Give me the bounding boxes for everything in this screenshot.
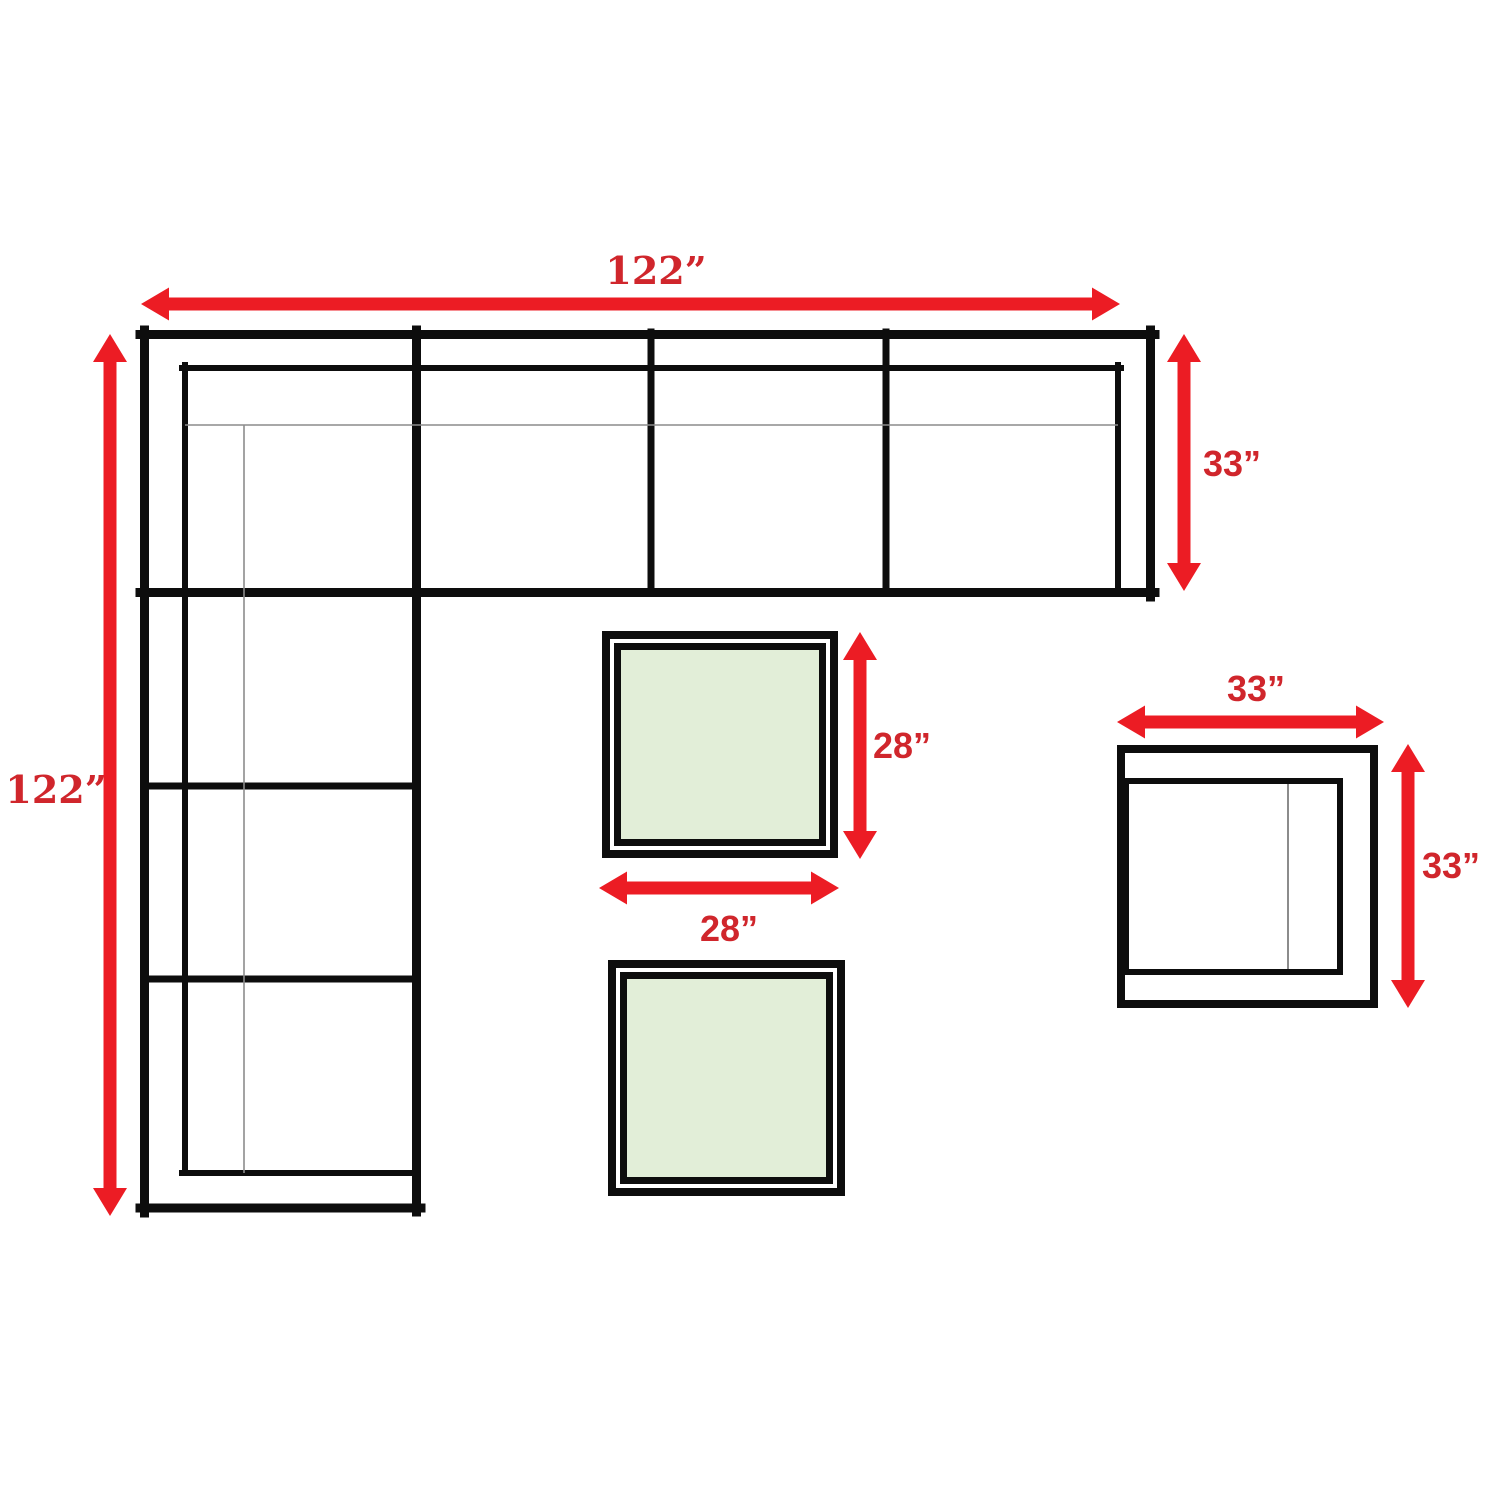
side-chair-outline (1121, 749, 1374, 1004)
side-chair-width-label: 33” (1227, 668, 1285, 709)
arrow-bar (1143, 716, 1358, 729)
sectional-width-label: 122” (605, 248, 706, 293)
sectional-depth-arrow (1167, 334, 1201, 591)
coffee-table-bottom-surface (624, 976, 830, 1181)
arrow-head-top (93, 334, 127, 362)
arrow-head-right (811, 872, 839, 905)
arrow-bar (625, 882, 813, 895)
arrow-bar (167, 298, 1094, 311)
arrow-head-bottom (93, 1188, 127, 1216)
arrow-head-bottom (1167, 563, 1201, 591)
arrow-head-left (599, 872, 627, 905)
coffee-table-depth-arrow (843, 632, 877, 859)
side-chair-outer-frame (1121, 749, 1374, 1004)
arrow-head-right (1356, 706, 1384, 739)
arrow-head-bottom (843, 831, 877, 859)
sectional-depth-label: 33” (1203, 443, 1261, 484)
arrow-head-right (1092, 288, 1120, 321)
coffee-table-top (606, 635, 834, 854)
coffee-table-bottom (612, 964, 841, 1192)
dimension-diagram-svg: 122” 122” 33” 28” 28” 33” 33” (0, 0, 1500, 1500)
side-chair-height-label: 33” (1422, 845, 1480, 886)
side-chair-width-arrow (1117, 706, 1384, 739)
arrow-bar (1402, 770, 1415, 982)
coffee-table-width-label: 28” (700, 908, 758, 949)
coffee-table-top-surface (618, 647, 823, 843)
arrow-head-left (1117, 706, 1145, 739)
arrow-head-bottom (1391, 980, 1425, 1008)
arrow-head-top (843, 632, 877, 660)
coffee-table-width-arrow (599, 872, 839, 905)
coffee-table-depth-label: 28” (873, 725, 931, 766)
arrow-head-top (1391, 744, 1425, 772)
furniture-dimension-diagram: 122” 122” 33” 28” 28” 33” 33” (0, 0, 1500, 1500)
side-chair-height-arrow (1391, 744, 1425, 1008)
arrow-bar (1178, 360, 1191, 565)
arrow-head-top (1167, 334, 1201, 362)
arrow-bar (854, 658, 867, 833)
sectional-height-label: 122” (5, 767, 106, 812)
arrow-head-left (141, 288, 169, 321)
